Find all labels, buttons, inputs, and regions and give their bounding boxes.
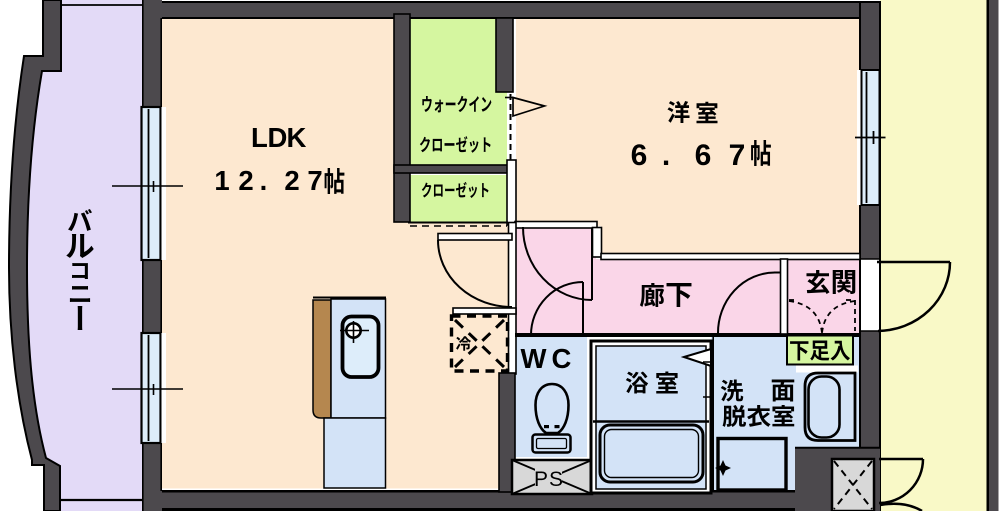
svg-text:.: .: [662, 139, 670, 172]
svg-text:PS: PS: [534, 468, 564, 491]
svg-text:D: D: [268, 122, 288, 153]
svg-text:7: 7: [307, 165, 322, 196]
svg-text:7: 7: [729, 139, 746, 172]
svg-text:2: 2: [238, 165, 253, 196]
svg-text:1: 1: [214, 165, 229, 196]
svg-text:W: W: [521, 343, 547, 374]
svg-text:6: 6: [695, 139, 712, 172]
svg-text:C: C: [552, 343, 572, 374]
svg-text:L: L: [251, 122, 268, 153]
svg-text:.: .: [260, 165, 268, 196]
svg-text:K: K: [287, 122, 307, 153]
svg-text:6: 6: [631, 139, 648, 172]
svg-text:2: 2: [284, 165, 299, 196]
